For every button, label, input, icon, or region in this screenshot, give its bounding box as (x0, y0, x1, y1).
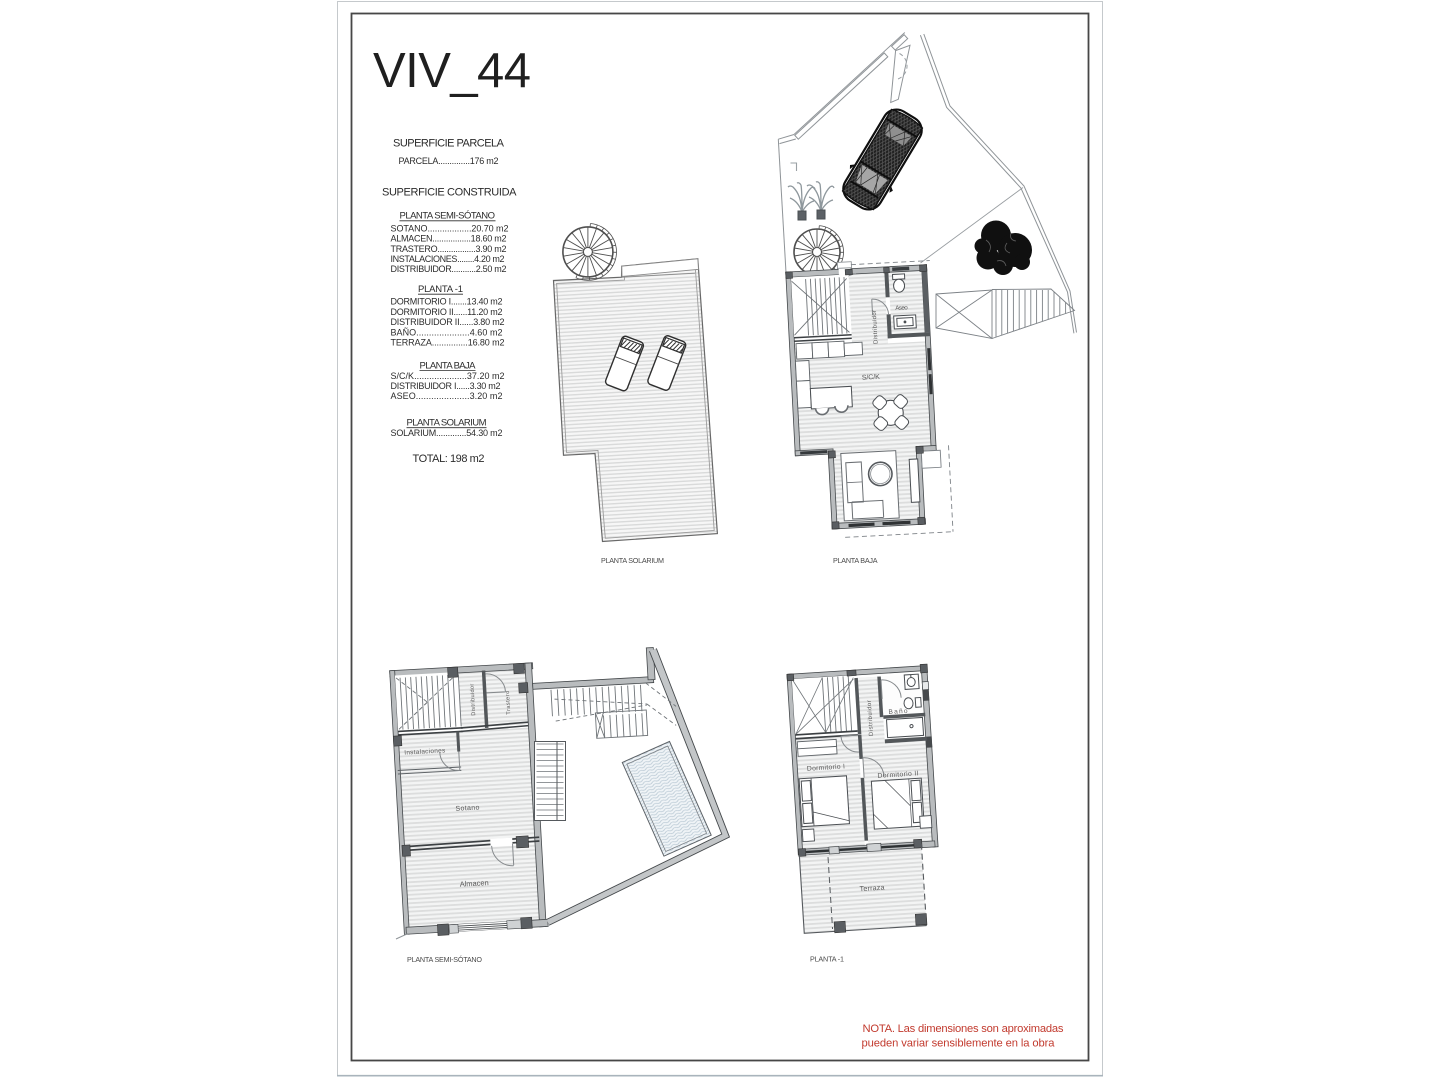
svg-text:Aseo: Aseo (895, 304, 908, 312)
svg-text:SUPERFICIE CONSTRUIDA: SUPERFICIE CONSTRUIDA (382, 187, 517, 199)
svg-text:PLANTA SEMI-SÓTANO: PLANTA SEMI-SÓTANO (400, 211, 496, 222)
svg-text:PLANTA BAJA: PLANTA BAJA (420, 360, 477, 371)
svg-text:S/C/K: S/C/K (862, 374, 881, 382)
svg-text:PLANTA -1: PLANTA -1 (418, 284, 463, 295)
svg-text:DISTRIBUIDOR I......3.30 m2: DISTRIBUIDOR I......3.30 m2 (391, 381, 501, 391)
svg-text:Almacen: Almacen (459, 878, 488, 889)
svg-text:ALMACEN.................18.60: ALMACEN.................18.60 m2 (391, 234, 507, 244)
svg-text:PLANTA SOLARIUM: PLANTA SOLARIUM (601, 556, 664, 565)
svg-text:PLANTA SOLARIUM: PLANTA SOLARIUM (407, 418, 487, 429)
svg-text:PLANTA SEMI-SÓTANO: PLANTA SEMI-SÓTANO (407, 955, 482, 964)
svg-text:SUPERFICIE PARCELA: SUPERFICIE PARCELA (393, 138, 505, 150)
svg-text:DORMITORIO I.......13.40 m2: DORMITORIO I.......13.40 m2 (391, 297, 503, 307)
svg-text:SOTANO..................20.70: SOTANO..................20.70 m2 (391, 223, 509, 233)
svg-text:DISTRIBUIDOR...........2.50 m2: DISTRIBUIDOR...........2.50 m2 (391, 264, 507, 274)
svg-text:PLANTA BAJA: PLANTA BAJA (833, 556, 878, 565)
svg-text:S/C/K.....................37.2: S/C/K.....................37.20 m2 (391, 371, 505, 381)
svg-text:SOLARIUM.............54.30 m2: SOLARIUM.............54.30 m2 (391, 428, 503, 438)
svg-text:PLANTA -1: PLANTA -1 (810, 955, 844, 964)
svg-text:DORMITORIO II......11.20 m2: DORMITORIO II......11.20 m2 (391, 307, 503, 317)
svg-text:Terraza: Terraza (859, 883, 885, 894)
svg-text:INSTALACIONES........4.20 m2: INSTALACIONES........4.20 m2 (391, 254, 505, 264)
svg-text:TRASTERO.................3.90: TRASTERO.................3.90 m2 (391, 244, 507, 254)
svg-text:PARCELA..............176 m2: PARCELA..............176 m2 (399, 156, 499, 166)
svg-text:TOTAL: 198 m2: TOTAL: 198 m2 (413, 453, 485, 465)
svg-text:VIV_44: VIV_44 (373, 44, 531, 98)
svg-text:TERRAZA...............16.80 m2: TERRAZA...............16.80 m2 (391, 337, 505, 347)
svg-text:DISTRIBUIDOR II......3.80 m2: DISTRIBUIDOR II......3.80 m2 (391, 317, 505, 327)
svg-text:Sotano: Sotano (455, 804, 479, 812)
svg-text:BAÑO.....................4.60: BAÑO.....................4.60 m2 (391, 327, 503, 337)
svg-text:NOTA. Las dimensiones son apro: NOTA. Las dimensiones son aproximadas (863, 1023, 1064, 1035)
svg-text:pueden variar sensiblemente en: pueden variar sensiblemente en la obra (862, 1038, 1056, 1050)
svg-text:ASEO.....................3.20: ASEO.....................3.20 m2 (391, 391, 503, 401)
